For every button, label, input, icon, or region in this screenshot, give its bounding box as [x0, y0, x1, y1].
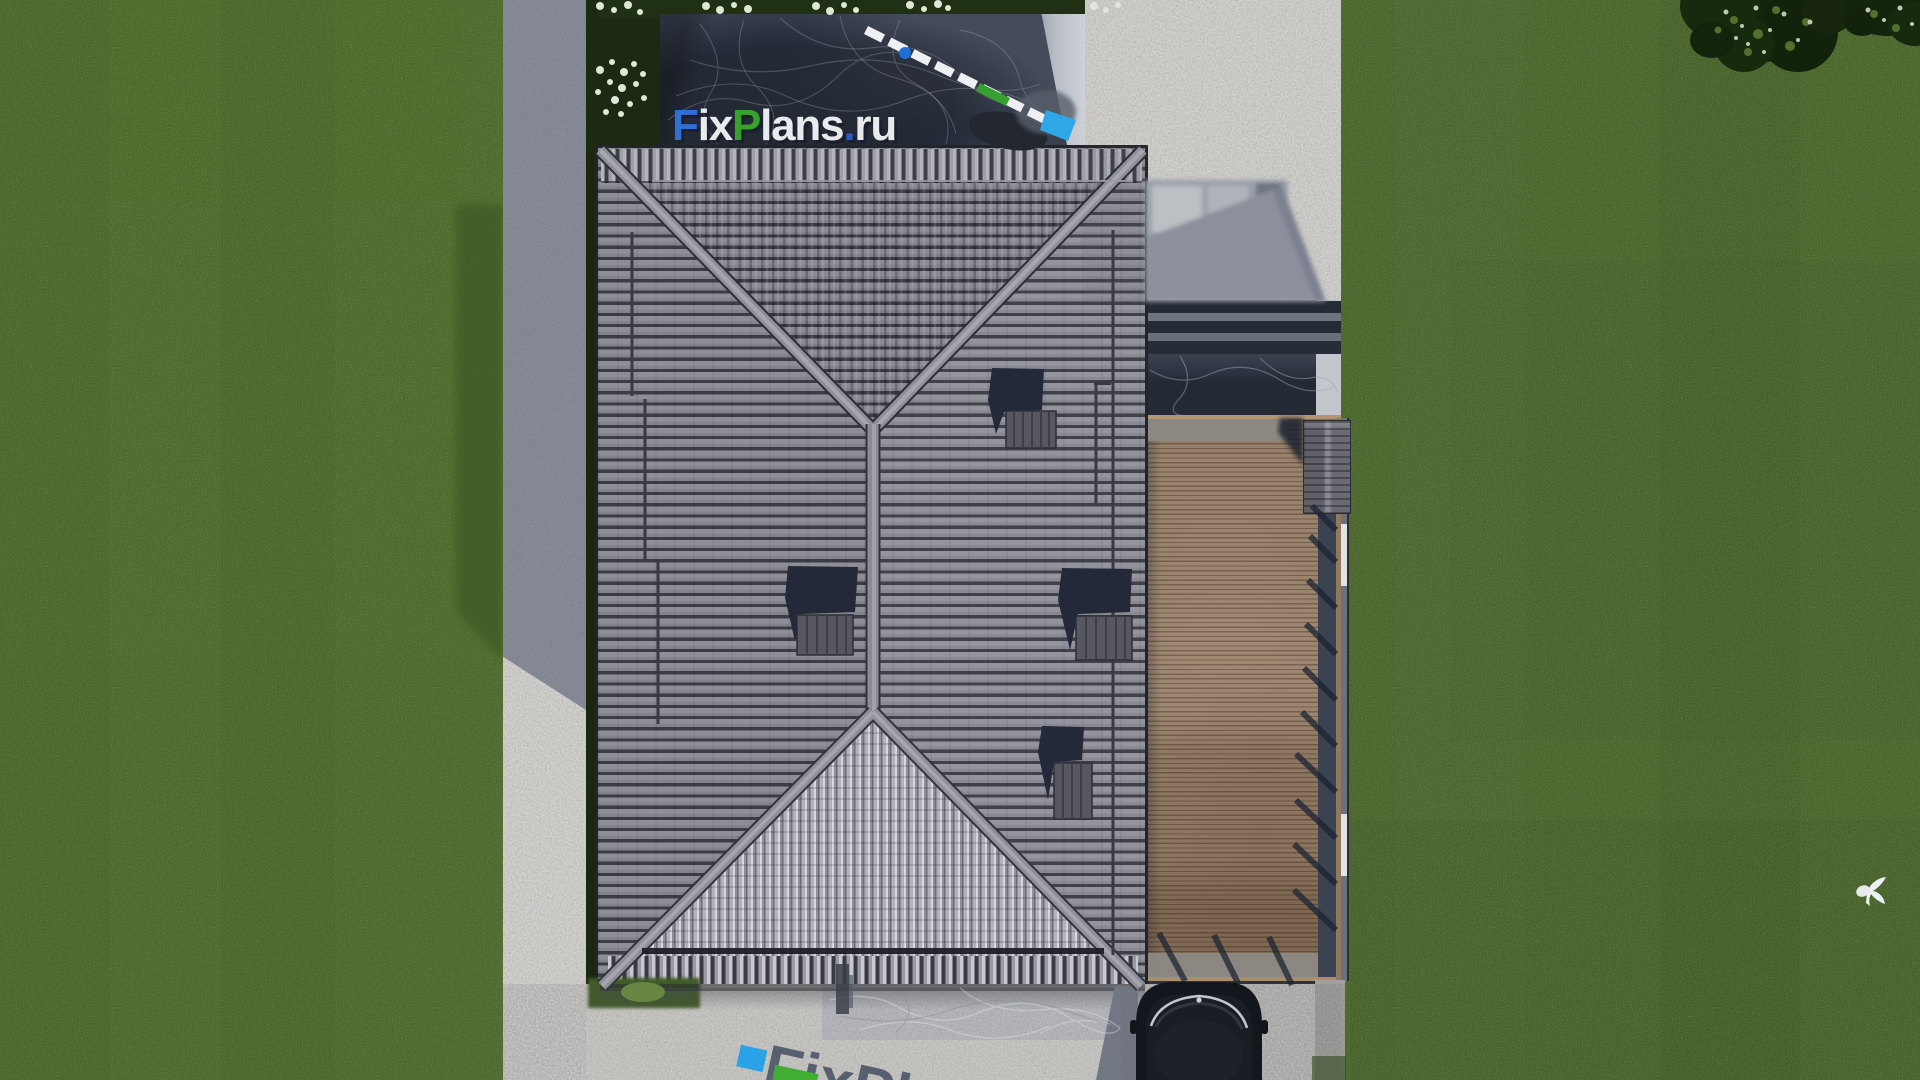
svg-text:FixPlans.ru: FixPlans.ru	[672, 101, 896, 150]
